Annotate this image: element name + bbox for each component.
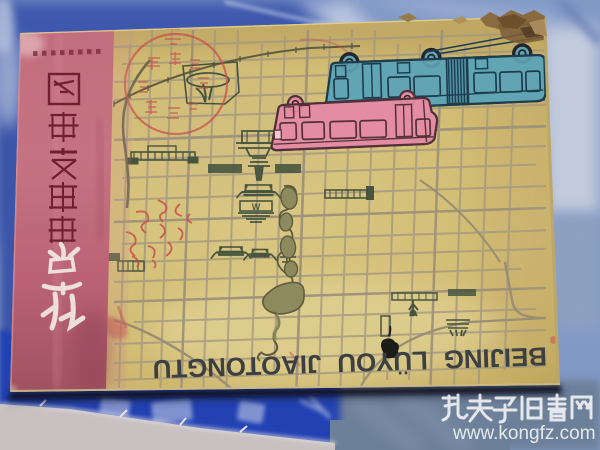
svg-text:W: W <box>252 202 261 212</box>
svg-text:www.kongfz.com: www.kongfz.com <box>452 423 596 444</box>
